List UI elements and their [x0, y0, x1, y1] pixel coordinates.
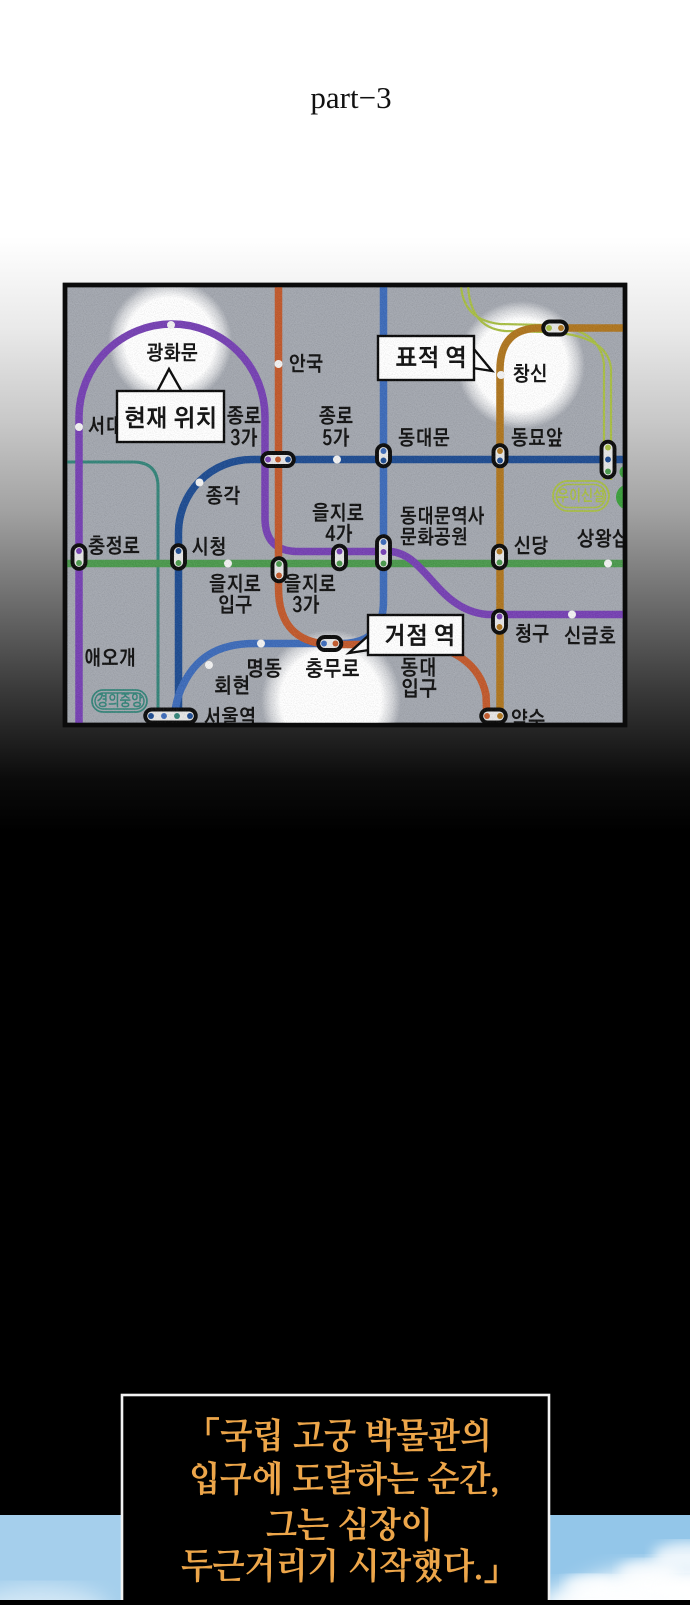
svg-text:part−3: part−3	[310, 80, 391, 115]
